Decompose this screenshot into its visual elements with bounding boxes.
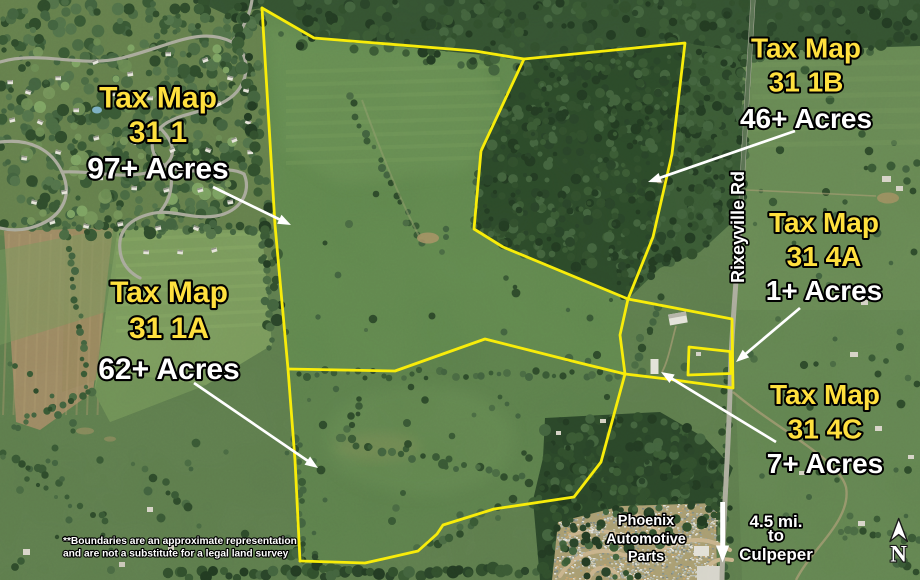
svg-text:Tax Map: Tax Map [769, 207, 879, 238]
svg-text:to: to [768, 526, 784, 545]
svg-text:31 1B: 31 1B [769, 67, 844, 98]
svg-text:N: N [890, 542, 907, 567]
svg-text:Culpeper: Culpeper [739, 545, 813, 564]
svg-text:Tax Map: Tax Map [770, 379, 880, 410]
svg-text:31 1A: 31 1A [129, 312, 209, 345]
svg-text:and are not a substitute for a: and are not a substitute for a legal lan… [63, 549, 289, 560]
svg-text:31 4A: 31 4A [787, 241, 862, 272]
svg-text:Tax Map: Tax Map [110, 276, 228, 309]
svg-text:Rixeyville Rd: Rixeyville Rd [728, 171, 748, 283]
svg-text:31 4C: 31 4C [788, 414, 863, 445]
svg-text:31 1: 31 1 [129, 116, 187, 149]
svg-text:Phoenix: Phoenix [618, 513, 674, 529]
svg-text:62+ Acres: 62+ Acres [98, 353, 240, 386]
svg-text:97+ Acres: 97+ Acres [87, 153, 229, 186]
svg-text:**Boundaries are an approximat: **Boundaries are an approximate represen… [63, 536, 297, 547]
svg-text:46+ Acres: 46+ Acres [740, 103, 872, 134]
svg-text:1+ Acres: 1+ Acres [766, 275, 883, 306]
svg-text:7+ Acres: 7+ Acres [767, 448, 884, 479]
svg-text:Tax Map: Tax Map [751, 33, 861, 64]
svg-text:Automotive: Automotive [606, 532, 686, 548]
svg-text:Parts: Parts [628, 549, 664, 565]
svg-text:Tax Map: Tax Map [99, 82, 217, 115]
